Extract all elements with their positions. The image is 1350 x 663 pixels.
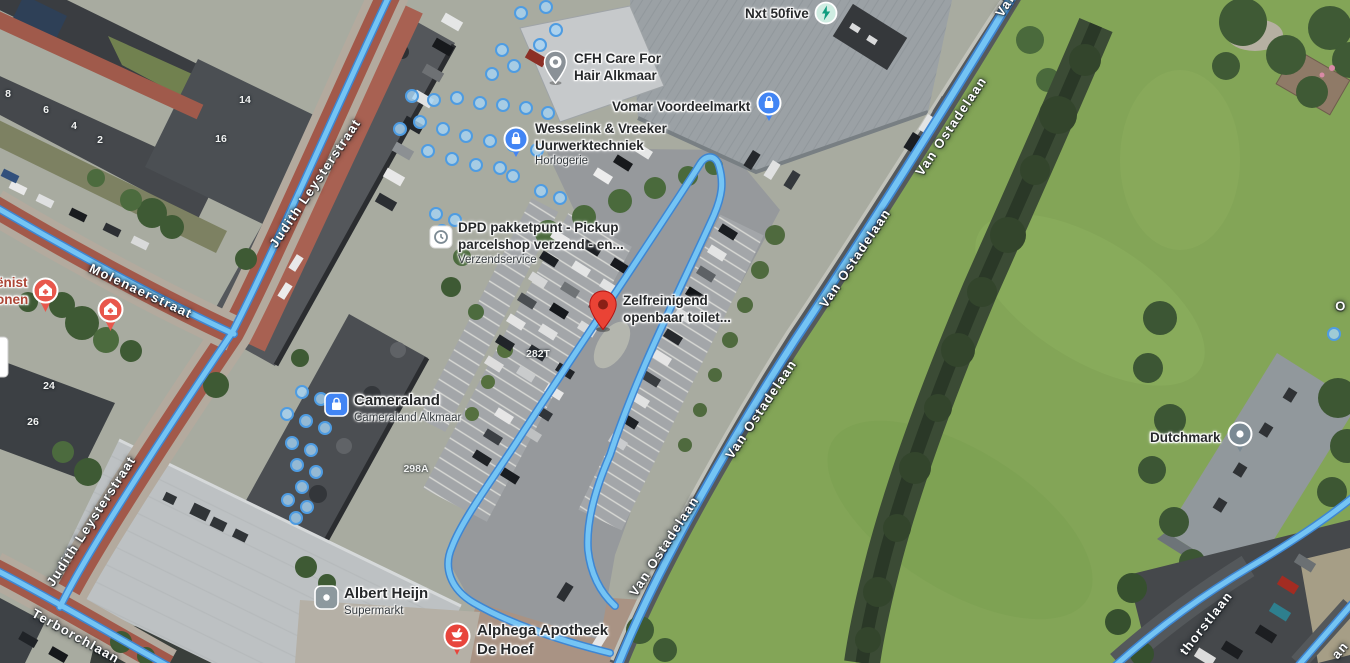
house-number: 16 (215, 133, 227, 145)
poi-wesselink-vreeker[interactable]: Wesselink & Vreeker Uurwerktechniek Horl… (502, 120, 667, 168)
poi-category: Horlogerie (535, 154, 667, 168)
poi-label: ënist (0, 274, 28, 291)
side-panel-edge[interactable] (0, 337, 8, 377)
poi-label: Cameraland (354, 392, 461, 411)
poi-label: CFH Care For (574, 50, 661, 67)
poi-health-partial[interactable]: ënist onen (0, 274, 28, 308)
poi-category: Cameraland Alkmaar (354, 411, 461, 425)
pharmacy-red-pin-icon[interactable] (442, 622, 472, 656)
poi-label: Uurwerktechniek (535, 137, 667, 154)
house-number: 298A (403, 463, 428, 475)
poi-label: Dutchmark (1150, 430, 1221, 445)
health-red-pin-icon[interactable] (96, 296, 125, 337)
shopping-blue-pin-icon[interactable] (502, 126, 530, 158)
house-number: 4 (71, 120, 77, 132)
poi-label: onen (0, 291, 28, 308)
poi-label: parcelshop verzend - en... (458, 236, 624, 253)
poi-label: Albert Heijn (344, 585, 428, 604)
poi-label: De Hoef (477, 641, 608, 660)
house-number: 26 (27, 416, 39, 428)
generic-gray-pin-icon[interactable] (542, 50, 569, 85)
poi-label: Nxt 50five (745, 6, 809, 21)
generic-slate-pin-icon[interactable] (1226, 421, 1254, 453)
health-red-pin-icon[interactable] (31, 277, 60, 318)
poi-category: Supermarkt (344, 604, 428, 618)
poi-category: Verzendservice (458, 253, 624, 267)
map-canvas[interactable]: Judith Leysterstraat Judith Leysterstraa… (0, 0, 1350, 663)
poi-vomar-voordeelmarkt[interactable]: Vomar Voordeelmarkt (612, 90, 783, 122)
poi-cameraland[interactable]: Cameraland Cameraland Alkmaar (324, 392, 461, 425)
house-number: 14 (239, 94, 251, 106)
house-number: 6 (43, 104, 49, 116)
house-number: 282T (526, 348, 550, 360)
poi-label: Zelfreinigend (623, 292, 731, 309)
house-number: 8 (5, 88, 11, 100)
shopping-blue-square-icon[interactable] (324, 392, 349, 417)
poi-cfh-care-for-hair[interactable]: CFH Care For Hair Alkmaar (542, 50, 661, 85)
house-number: 2 (97, 134, 103, 146)
poi-label: Hair Alkmaar (574, 67, 661, 84)
poi-nxt-50five[interactable]: Nxt 50five (745, 1, 838, 25)
ev-charging-icon[interactable] (814, 1, 838, 25)
poi-dutchmark[interactable]: Dutchmark (1150, 421, 1254, 453)
poi-zelfreinigend-toilet[interactable]: Zelfreinigend openbaar toilet... (588, 290, 731, 332)
poi-label: Wesselink & Vreeker (535, 120, 667, 137)
red-destination-marker-icon[interactable] (588, 290, 618, 332)
parcel-service-icon[interactable] (429, 225, 453, 249)
poi-label: Alphega Apotheek (477, 622, 608, 641)
poi-dpd-pakketpunt[interactable]: DPD pakketpunt - Pickup parcelshop verze… (429, 219, 624, 267)
house-number: 24 (43, 380, 55, 392)
poi-label: openbaar toilet... (623, 309, 731, 326)
poi-label: DPD pakketpunt - Pickup (458, 219, 624, 236)
poi-alphega-apotheek[interactable]: Alphega Apotheek De Hoef (442, 622, 608, 660)
shopping-blue-pin-icon[interactable] (755, 90, 783, 122)
poi-label: Vomar Voordeelmarkt (612, 99, 750, 114)
street-label-o-partial: O (1335, 299, 1347, 314)
gray-square-dot-icon[interactable] (314, 585, 339, 610)
poi-albert-heijn[interactable]: Albert Heijn Supermarkt (314, 585, 428, 618)
